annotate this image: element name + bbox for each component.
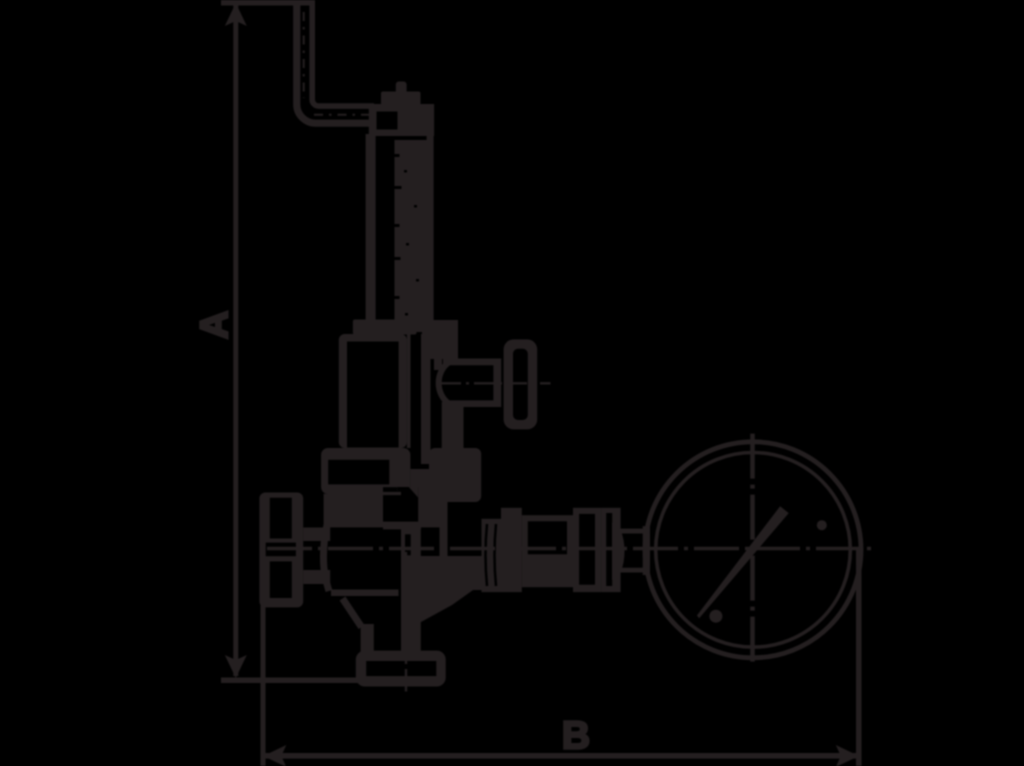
svg-text:B: B [562,715,590,758]
svg-text:A: A [194,311,237,339]
